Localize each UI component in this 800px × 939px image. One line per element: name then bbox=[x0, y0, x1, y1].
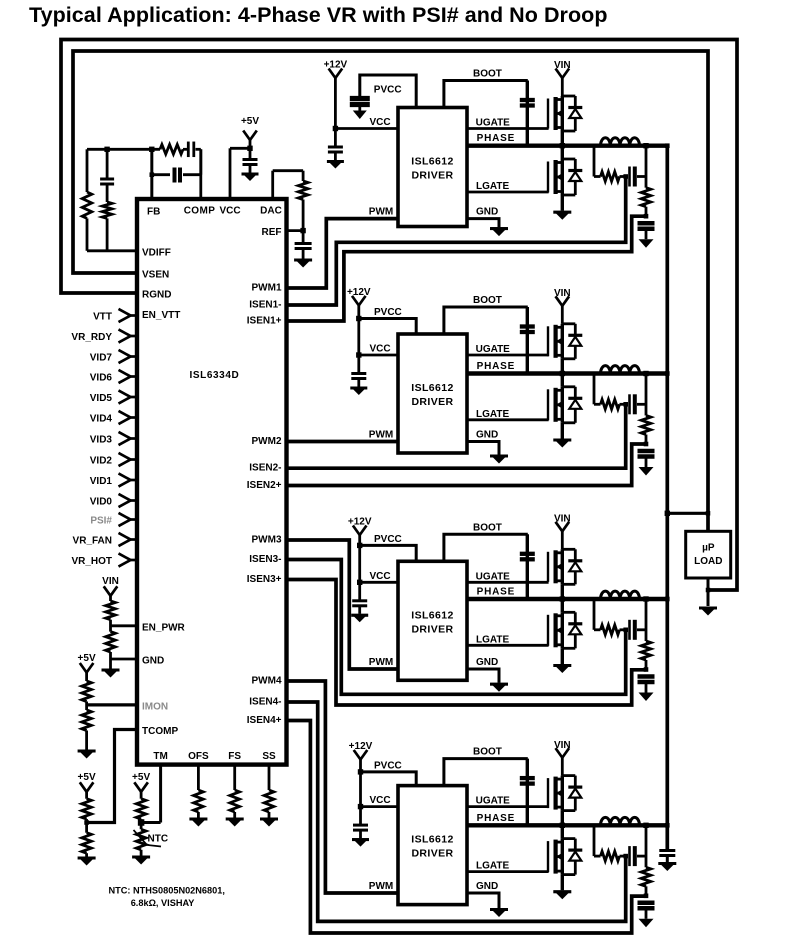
svg-text:VCC: VCC bbox=[370, 571, 391, 582]
svg-text:ISEN1+: ISEN1+ bbox=[247, 316, 282, 327]
svg-text:+12V: +12V bbox=[348, 517, 372, 528]
svg-text:GND: GND bbox=[142, 656, 164, 667]
svg-text:UGATE: UGATE bbox=[476, 796, 511, 807]
svg-text:PWM: PWM bbox=[369, 657, 393, 668]
svg-text:PWM: PWM bbox=[369, 430, 393, 441]
svg-text:VCC: VCC bbox=[370, 117, 391, 128]
svg-text:ISEN1-: ISEN1- bbox=[249, 300, 281, 311]
svg-text:LOAD: LOAD bbox=[694, 556, 722, 567]
svg-text:NTC: NTC bbox=[148, 834, 169, 845]
svg-text:VID6: VID6 bbox=[90, 373, 113, 384]
svg-text:ISEN4-: ISEN4- bbox=[249, 697, 281, 708]
svg-text:BOOT: BOOT bbox=[473, 295, 502, 306]
svg-text:ISL6612: ISL6612 bbox=[411, 156, 454, 168]
svg-text:+12V: +12V bbox=[324, 60, 348, 71]
svg-text:+5V: +5V bbox=[241, 116, 259, 127]
svg-text:UGATE: UGATE bbox=[476, 571, 511, 582]
svg-text:PHASE: PHASE bbox=[477, 133, 515, 144]
svg-text:GND: GND bbox=[476, 430, 498, 441]
svg-text:PWM: PWM bbox=[369, 207, 393, 218]
svg-text:VID4: VID4 bbox=[90, 414, 113, 425]
svg-text:VID5: VID5 bbox=[90, 393, 113, 404]
svg-text:PHASE: PHASE bbox=[477, 361, 515, 372]
svg-text:PWM1: PWM1 bbox=[252, 283, 282, 294]
svg-text:DRIVER: DRIVER bbox=[411, 396, 453, 408]
svg-text:ISL6612: ISL6612 bbox=[411, 382, 454, 394]
svg-text:BOOT: BOOT bbox=[473, 522, 502, 533]
svg-text:LGATE: LGATE bbox=[476, 634, 509, 645]
svg-text:ISEN2-: ISEN2- bbox=[249, 463, 281, 474]
svg-text:VID2: VID2 bbox=[90, 456, 113, 467]
svg-text:VIN: VIN bbox=[102, 576, 119, 587]
svg-text:ISL6612: ISL6612 bbox=[411, 609, 454, 621]
svg-text:LGATE: LGATE bbox=[476, 409, 509, 420]
svg-text:+12V: +12V bbox=[347, 287, 371, 298]
svg-text:VCC: VCC bbox=[370, 795, 391, 806]
svg-text:PHASE: PHASE bbox=[477, 813, 515, 824]
svg-text:+5V: +5V bbox=[132, 772, 150, 783]
svg-text:EN_VTT: EN_VTT bbox=[142, 310, 180, 321]
svg-text:ISEN4+: ISEN4+ bbox=[247, 715, 282, 726]
svg-text:UGATE: UGATE bbox=[476, 344, 511, 355]
svg-text:TCOMP: TCOMP bbox=[142, 726, 178, 737]
svg-text:DRIVER: DRIVER bbox=[411, 170, 453, 182]
svg-text:ISEN3-: ISEN3- bbox=[249, 554, 281, 565]
svg-text:PVCC: PVCC bbox=[374, 307, 402, 318]
svg-text:VSEN: VSEN bbox=[142, 270, 169, 281]
svg-text:+5V: +5V bbox=[78, 653, 96, 664]
svg-text:ISL6612: ISL6612 bbox=[411, 834, 454, 846]
svg-text:ISEN3+: ISEN3+ bbox=[247, 574, 282, 585]
svg-text:VID0: VID0 bbox=[90, 497, 113, 508]
svg-text:LGATE: LGATE bbox=[476, 861, 509, 872]
svg-text:UGATE: UGATE bbox=[476, 118, 511, 129]
svg-text:RGND: RGND bbox=[142, 290, 171, 301]
svg-text:PWM3: PWM3 bbox=[252, 535, 282, 546]
svg-text:VR_FAN: VR_FAN bbox=[73, 536, 112, 547]
svg-text:VCC: VCC bbox=[370, 344, 391, 355]
svg-text:FB: FB bbox=[147, 207, 160, 218]
svg-text:VID3: VID3 bbox=[90, 435, 113, 446]
svg-text:DRIVER: DRIVER bbox=[411, 848, 453, 860]
svg-text:IMON: IMON bbox=[142, 701, 168, 712]
svg-text:PWM2: PWM2 bbox=[252, 436, 282, 447]
svg-text:ISL6334D: ISL6334D bbox=[190, 370, 240, 381]
svg-text:VTT: VTT bbox=[93, 312, 112, 323]
svg-text:VR_HOT: VR_HOT bbox=[71, 556, 112, 567]
svg-text:COMP: COMP bbox=[184, 206, 216, 217]
svg-text:OFS: OFS bbox=[188, 751, 209, 762]
svg-text:FS: FS bbox=[228, 751, 241, 762]
svg-text:NTC: NTHS0805N02N6801,: NTC: NTHS0805N02N6801, bbox=[109, 886, 225, 896]
svg-text:PWM4: PWM4 bbox=[252, 676, 282, 687]
svg-text:VDIFF: VDIFF bbox=[142, 247, 171, 258]
svg-text:PVCC: PVCC bbox=[374, 85, 402, 96]
svg-text:6.8kΩ, VISHAY: 6.8kΩ, VISHAY bbox=[131, 898, 195, 908]
svg-text:DRIVER: DRIVER bbox=[411, 623, 453, 635]
svg-text:TM: TM bbox=[153, 751, 167, 762]
svg-text:PVCC: PVCC bbox=[374, 760, 402, 771]
svg-text:GND: GND bbox=[476, 657, 498, 668]
svg-text:µP: µP bbox=[702, 543, 715, 554]
svg-text:PHASE: PHASE bbox=[477, 587, 515, 598]
svg-text:REF: REF bbox=[262, 227, 282, 238]
svg-text:VCC: VCC bbox=[219, 206, 240, 217]
svg-text:DAC: DAC bbox=[260, 206, 282, 217]
svg-text:PWM: PWM bbox=[369, 881, 393, 892]
svg-text:VID7: VID7 bbox=[90, 353, 113, 364]
svg-text:GND: GND bbox=[476, 207, 498, 218]
svg-text:+5V: +5V bbox=[78, 772, 96, 783]
svg-text:ISEN2+: ISEN2+ bbox=[247, 480, 282, 491]
svg-text:GND: GND bbox=[476, 881, 498, 892]
svg-text:EN_PWR: EN_PWR bbox=[142, 622, 186, 633]
svg-text:SS: SS bbox=[262, 751, 276, 762]
svg-text:Typical Application: 4-Phase V: Typical Application: 4-Phase VR with PSI… bbox=[29, 3, 608, 27]
svg-text:+12V: +12V bbox=[349, 741, 373, 752]
svg-text:VID1: VID1 bbox=[90, 476, 113, 487]
svg-text:PVCC: PVCC bbox=[374, 534, 402, 545]
svg-text:BOOT: BOOT bbox=[473, 747, 502, 758]
svg-text:VR_RDY: VR_RDY bbox=[71, 332, 112, 343]
svg-text:BOOT: BOOT bbox=[473, 69, 502, 80]
svg-text:LGATE: LGATE bbox=[476, 181, 509, 192]
svg-text:PSI#: PSI# bbox=[90, 516, 112, 527]
